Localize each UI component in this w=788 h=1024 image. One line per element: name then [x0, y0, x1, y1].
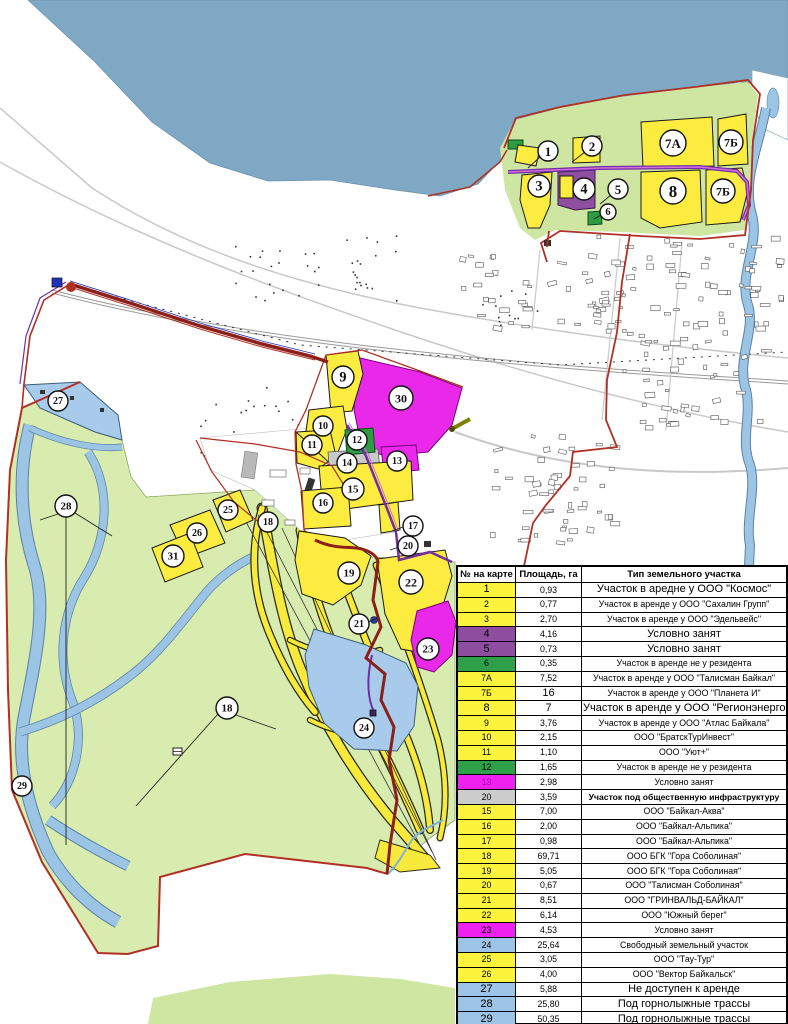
svg-text:7А: 7А	[665, 136, 682, 151]
plot-label-25: 25	[218, 500, 238, 520]
plot-type-cell: Участок в аренде у ООО "Эдельвейс"	[582, 612, 787, 627]
svg-text:10: 10	[318, 421, 328, 432]
svg-text:8: 8	[669, 182, 677, 201]
plot-area-cell: 6,14	[516, 908, 582, 923]
plot-label-24: 24	[354, 718, 374, 738]
plot-number-cell: 17	[458, 834, 516, 849]
plot-area-cell: 0,73	[516, 642, 582, 657]
table-row: 87Участок в аренде у ООО "Регионэнерго"	[458, 701, 787, 716]
table-row: 60,35Участок в аренде не у резидента	[458, 656, 787, 671]
plot-type-cell: Участок в аренде не у резидента	[582, 760, 787, 775]
plot-type-cell: Участок в аренде у ООО "Сахалин Групп"	[582, 597, 787, 612]
plot-type-cell: Участок в аредне у ООО "Космос"	[582, 583, 787, 598]
table-row: 44,16Условно занят	[458, 627, 787, 642]
svg-text:30: 30	[395, 392, 407, 406]
table-row: 234,53Условно занят	[458, 923, 787, 938]
plot-area-cell: 69,71	[516, 849, 582, 864]
svg-text:27: 27	[53, 396, 63, 407]
table-row: 132,98Условно занят	[458, 775, 787, 790]
table-row: 93,76Участок в аренде у ООО "Атлас Байка…	[458, 716, 787, 731]
plot-label-7А: 7А	[660, 130, 686, 156]
plot-type-cell: ООО "Уют+"	[582, 745, 787, 760]
svg-text:12: 12	[352, 435, 362, 446]
plot-number-cell: 11	[458, 745, 516, 760]
table-row: 253,05ООО "Тау-Тур"	[458, 952, 787, 967]
plot-label-6: 6	[600, 204, 616, 220]
plot-number-cell: 15	[458, 804, 516, 819]
plot-type-cell: ООО "БратскТурИнвест"	[582, 730, 787, 745]
plot-label-17: 17	[403, 516, 423, 536]
plot-type-cell: ООО "Байкал-Альпика"	[582, 834, 787, 849]
plot-area-cell: 8,51	[516, 893, 582, 908]
plot-type-cell: Под горнолыжные трассы	[582, 1012, 787, 1024]
svg-text:1: 1	[545, 144, 552, 159]
plot-label-11: 11	[302, 435, 322, 455]
plot-area-cell: 1,10	[516, 745, 582, 760]
svg-text:23: 23	[423, 644, 435, 656]
table-row: 157,00ООО "Байкал-Аква"	[458, 804, 787, 819]
table-row: 10,93Участок в аредне у ООО "Космос"	[458, 583, 787, 598]
plot-number-cell: 28	[458, 997, 516, 1012]
header-plot-number: № на карте	[458, 567, 516, 583]
table-row: 2425,64Свободный земельный участок	[458, 938, 787, 953]
plot-area-cell: 2,15	[516, 730, 582, 745]
table-row: 162,00ООО "Байкал-Альпика"	[458, 819, 787, 834]
table-row: 121,65Участок в аренде не у резидента	[458, 760, 787, 775]
svg-text:21: 21	[354, 619, 364, 630]
plot-number-cell: 6	[458, 656, 516, 671]
plot-number-cell: 3	[458, 612, 516, 627]
svg-text:19: 19	[344, 568, 356, 580]
plot-type-cell: Условно занят	[582, 627, 787, 642]
plot-area-cell: 16	[516, 686, 582, 701]
plot-1	[515, 145, 540, 166]
plot-number-cell: 19	[458, 864, 516, 879]
svg-text:3: 3	[535, 179, 542, 195]
plot-label-30: 30	[389, 386, 413, 410]
svg-text:2: 2	[589, 139, 596, 154]
plot-number-cell: 27	[458, 982, 516, 997]
plot-area-cell: 7,00	[516, 804, 582, 819]
plot-area-cell: 7,52	[516, 671, 582, 686]
plot-area-cell: 4,16	[516, 627, 582, 642]
plot-area-cell: 0,67	[516, 878, 582, 893]
plot-number-cell: 9	[458, 716, 516, 731]
svg-text:7Б: 7Б	[724, 136, 738, 150]
header-area: Площадь, га	[516, 567, 582, 583]
svg-text:26: 26	[192, 528, 202, 539]
plot-label-29: 29	[12, 776, 32, 796]
plot-label-4: 4	[573, 178, 595, 200]
table-row: 7А7,52Участок в аренде у ООО "Талисман Б…	[458, 671, 787, 686]
plot-type-cell: Условно занят	[582, 775, 787, 790]
svg-text:31: 31	[168, 551, 179, 563]
plot-number-cell: 16	[458, 819, 516, 834]
plot-area-cell: 7	[516, 701, 582, 716]
plot-number-cell: 29	[458, 1012, 516, 1024]
plot-type-cell: ООО "Талисман Соболиная"	[582, 878, 787, 893]
plot-type-cell: Участок в аренде у ООО "Атлас Байкала"	[582, 716, 787, 731]
plot-area-cell: 0,77	[516, 597, 582, 612]
svg-text:25: 25	[223, 505, 233, 516]
plot-number-cell: 18	[458, 849, 516, 864]
svg-text:29: 29	[17, 781, 27, 792]
table-row: 1869,71ООО БГК "Гора Соболиная"	[458, 849, 787, 864]
plot-number-cell: 23	[458, 923, 516, 938]
plot-number-cell: 8	[458, 701, 516, 716]
plot-area-cell: 0,35	[516, 656, 582, 671]
table-row: 50,73Условно занят	[458, 642, 787, 657]
plots-table: № на карте Площадь, га Тип земельного уч…	[456, 565, 788, 1024]
plot-type-cell: ООО "Байкал-Аква"	[582, 804, 787, 819]
table-row: 20,77Участок в аренде у ООО "Сахалин Гру…	[458, 597, 787, 612]
plot-area-cell: 4,53	[516, 923, 582, 938]
plot-number-cell: 20	[458, 878, 516, 893]
svg-text:24: 24	[359, 723, 369, 734]
plot-type-cell: Участок в аренде не у резидента	[582, 656, 787, 671]
plot-label-9: 9	[332, 366, 354, 388]
plot-type-cell: ООО "Байкал-Альпика"	[582, 819, 787, 834]
plot-area-cell: 3,59	[516, 790, 582, 805]
plot-type-cell: ООО "Южный берег"	[582, 908, 787, 923]
plot-number-cell: 13	[458, 775, 516, 790]
svg-text:18: 18	[222, 703, 234, 715]
plot-type-cell: Участок в аренде у ООО "Талисман Байкал"	[582, 671, 787, 686]
table-row: 170,98ООО "Байкал-Альпика"	[458, 834, 787, 849]
plot-area-cell: 4,00	[516, 967, 582, 982]
plot-type-cell: ООО "Тау-Тур"	[582, 952, 787, 967]
plot-type-cell: Не доступен к аренде	[582, 982, 787, 997]
plot-number-cell: 1	[458, 583, 516, 598]
table-row: 7Б16Участок в аренде у ООО "Планета И"	[458, 686, 787, 701]
plot-label-8: 8	[660, 178, 686, 204]
plot-area-cell: 0,93	[516, 583, 582, 598]
plot-label-23: 23	[417, 638, 439, 660]
plot-type-cell: Условно занят	[582, 642, 787, 657]
plot-area-cell: 2,00	[516, 819, 582, 834]
svg-text:22: 22	[405, 576, 417, 590]
plot-number-cell: 25	[458, 952, 516, 967]
plot-type-cell: Условно занят	[582, 923, 787, 938]
table-row: 226,14ООО "Южный берег"	[458, 908, 787, 923]
header-plot-type: Тип земельного участка	[582, 567, 787, 583]
plot-type-cell: Участок под общественную инфраструктуру	[582, 790, 787, 805]
plot-label-28: 28	[55, 495, 77, 517]
plot-type-cell: ООО БГК "Гора Соболиная"	[582, 849, 787, 864]
plot-label-18: 18	[216, 697, 238, 719]
table-row: 111,10ООО "Уют+"	[458, 745, 787, 760]
svg-text:5: 5	[615, 182, 622, 197]
plot-label-13: 13	[387, 451, 407, 471]
plot-type-cell: ООО "Вектор Байкальск"	[582, 967, 787, 982]
table-row: 32,70Участок в аренде у ООО "Эдельвейс"	[458, 612, 787, 627]
svg-text:18: 18	[263, 517, 273, 528]
plot-label-21: 21	[349, 614, 369, 634]
svg-text:20: 20	[403, 541, 413, 552]
plot-label-27: 27	[48, 391, 68, 411]
table-row: 102,15ООО "БратскТурИнвест"	[458, 730, 787, 745]
plot-label-7Б: 7Б	[711, 179, 735, 203]
svg-text:4: 4	[580, 182, 587, 198]
plot-label-14: 14	[337, 453, 357, 473]
plot-label-3: 3	[528, 175, 550, 197]
plot-label-20: 20	[398, 536, 418, 556]
svg-text:14: 14	[342, 458, 352, 469]
plot-area-cell: 50,35	[516, 1012, 582, 1024]
plot-number-cell: 12	[458, 760, 516, 775]
plot-area-cell: 5,05	[516, 864, 582, 879]
land-plots-map-document: 1234567А7Б87Б930101112131415161720192221…	[0, 0, 788, 1024]
plot-number-cell: 26	[458, 967, 516, 982]
table-header-row: № на карте Площадь, га Тип земельного уч…	[458, 567, 787, 583]
plot-label-31: 31	[162, 545, 184, 567]
plot-area-cell: 2,70	[516, 612, 582, 627]
plot-label-26: 26	[187, 523, 207, 543]
plot-type-cell: Участок в аренде у ООО "Регионэнерго"	[582, 701, 787, 716]
plot-area-cell: 25,64	[516, 938, 582, 953]
plot-area-cell: 0,98	[516, 834, 582, 849]
plot-type-cell: ООО "ГРИНВАЛЬД-БАЙКАЛ"	[582, 893, 787, 908]
table-row: 275,88Не доступен к аренде	[458, 982, 787, 997]
plot-label-15: 15	[342, 478, 364, 500]
plot-area-cell: 5,88	[516, 982, 582, 997]
plot-number-cell: 5	[458, 642, 516, 657]
plot-type-cell: Под горнолыжные трассы	[582, 997, 787, 1012]
plot-label-10: 10	[313, 416, 333, 436]
svg-text:7Б: 7Б	[716, 185, 730, 199]
svg-text:11: 11	[307, 440, 316, 451]
svg-text:15: 15	[348, 484, 360, 496]
plot-label-22: 22	[399, 570, 423, 594]
plot-type-cell: Свободный земельный участок	[582, 938, 787, 953]
plot-number-cell: 2	[458, 597, 516, 612]
plot-label-5: 5	[608, 179, 628, 199]
table-row: 2825,80Под горнолыжные трассы	[458, 997, 787, 1012]
plot-label-1: 1	[538, 141, 558, 161]
plot-number-cell: 21	[458, 893, 516, 908]
plot-area-cell: 2,98	[516, 775, 582, 790]
plot-type-cell: ООО БГК "Гора Соболиная"	[582, 864, 787, 879]
svg-text:6: 6	[605, 207, 610, 218]
svg-text:28: 28	[61, 501, 73, 513]
plot-label-19: 19	[338, 562, 360, 584]
table-row: 218,51ООО "ГРИНВАЛЬД-БАЙКАЛ"	[458, 893, 787, 908]
table-row: 200,67ООО "Талисман Соболиная"	[458, 878, 787, 893]
plot-area-cell: 1,65	[516, 760, 582, 775]
plot-number-cell: 7А	[458, 671, 516, 686]
plot-label-18: 18	[258, 512, 278, 532]
plot-label-16: 16	[313, 493, 333, 513]
plot-label-7Б: 7Б	[719, 130, 743, 154]
plot-number-cell: 20	[458, 790, 516, 805]
plot-number-cell: 4	[458, 627, 516, 642]
table-row: 195,05ООО БГК "Гора Соболиная"	[458, 864, 787, 879]
svg-text:16: 16	[318, 498, 328, 509]
plot-number-cell: 22	[458, 908, 516, 923]
svg-text:9: 9	[339, 370, 346, 386]
plot-type-cell: Участок в аренде у ООО "Планета И"	[582, 686, 787, 701]
plot-number-cell: 24	[458, 938, 516, 953]
plot-label-2: 2	[582, 136, 602, 156]
plot-number-cell: 10	[458, 730, 516, 745]
plot-area-cell: 25,80	[516, 997, 582, 1012]
svg-text:13: 13	[392, 456, 402, 467]
table-row: 264,00ООО "Вектор Байкальск"	[458, 967, 787, 982]
table-row: 2950,35Под горнолыжные трассы	[458, 1012, 787, 1024]
plot-area-cell: 3,76	[516, 716, 582, 731]
plot-area-cell: 3,05	[516, 952, 582, 967]
table-row: 203,59Участок под общественную инфрастру…	[458, 790, 787, 805]
plot-number-cell: 7Б	[458, 686, 516, 701]
svg-text:17: 17	[408, 521, 418, 532]
plot-label-12: 12	[347, 430, 367, 450]
